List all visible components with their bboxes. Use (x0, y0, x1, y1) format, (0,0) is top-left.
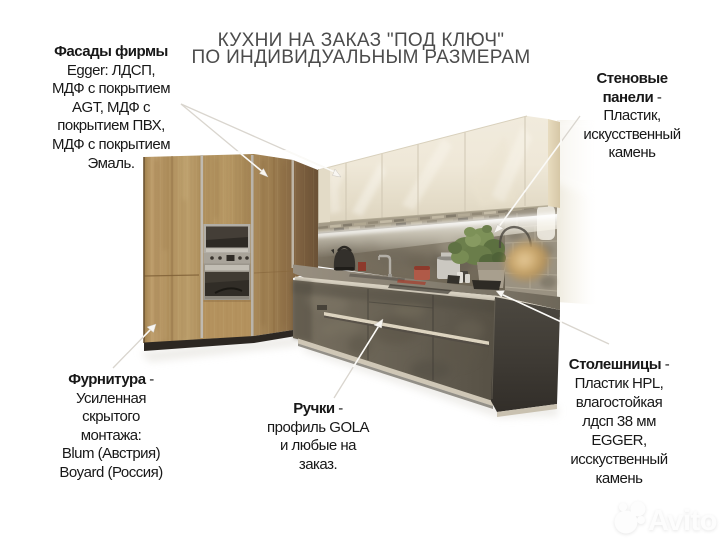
svg-text:Avito: Avito (648, 505, 717, 537)
